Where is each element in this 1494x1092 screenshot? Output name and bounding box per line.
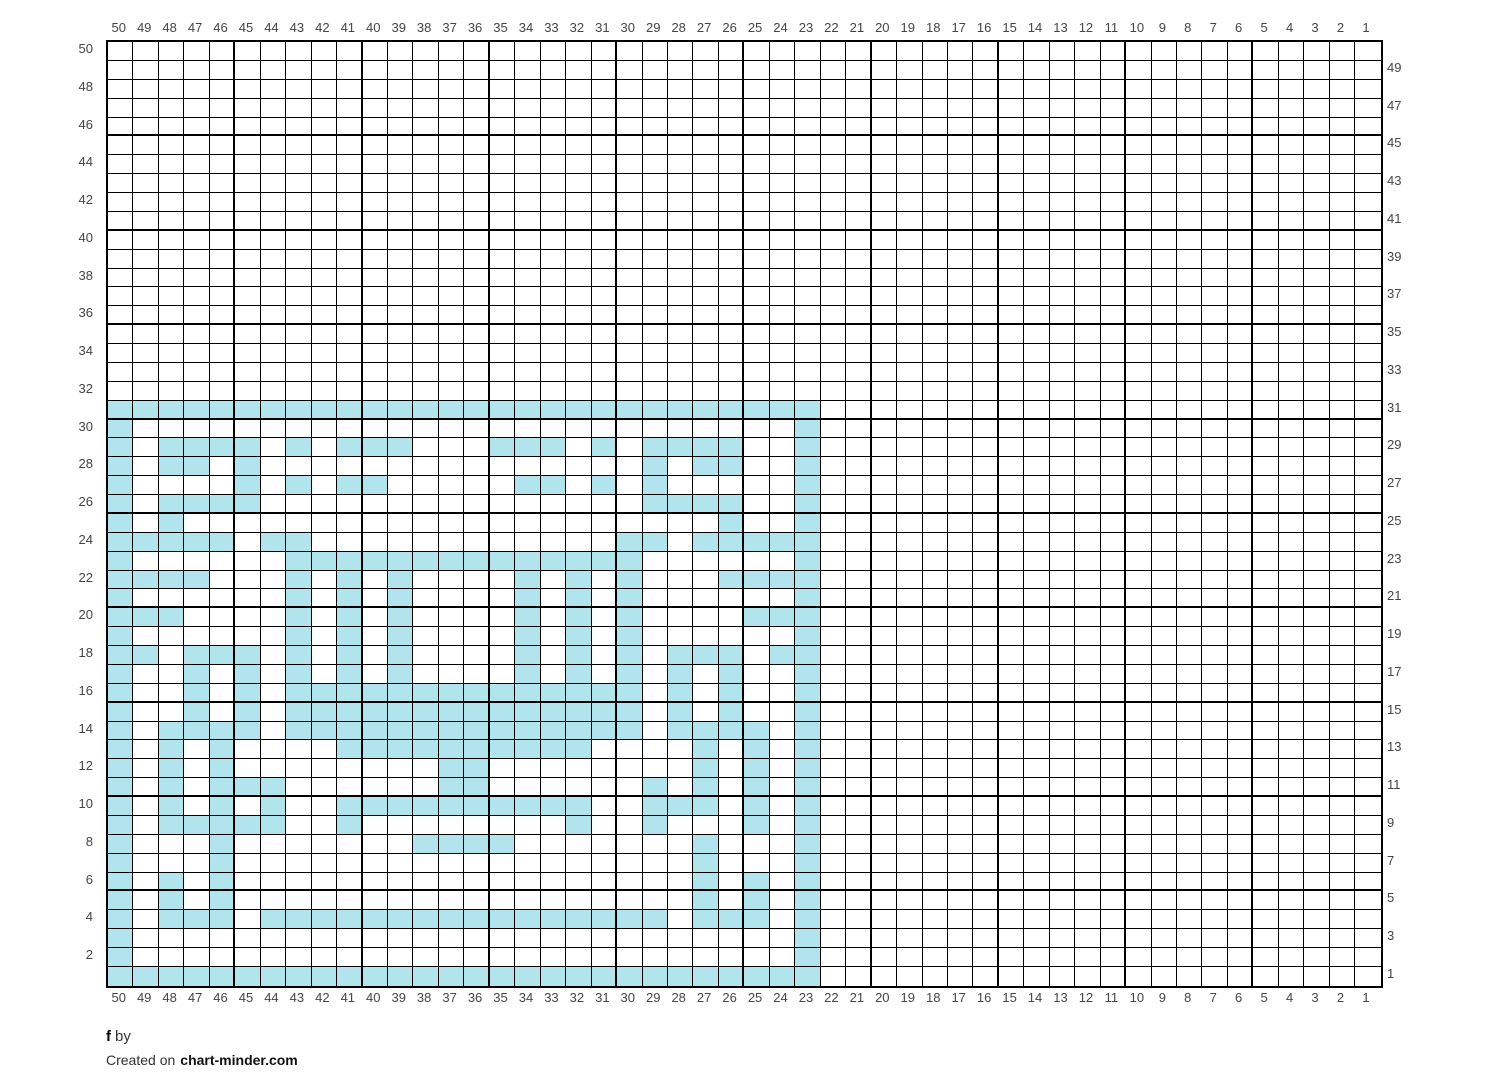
grid-cell[interactable] <box>1050 438 1075 457</box>
grid-cell[interactable] <box>108 80 133 99</box>
grid-cell[interactable] <box>490 552 515 571</box>
grid-cell[interactable] <box>388 759 413 778</box>
grid-cell[interactable] <box>1330 193 1355 212</box>
grid-cell[interactable] <box>1177 778 1202 797</box>
grid-cell[interactable] <box>184 514 209 533</box>
grid-cell[interactable] <box>108 929 133 948</box>
grid-cell[interactable] <box>337 646 362 665</box>
grid-cell[interactable] <box>1202 269 1227 288</box>
grid-cell[interactable] <box>235 684 260 703</box>
grid-cell[interactable] <box>1050 967 1075 986</box>
grid-cell[interactable] <box>1253 627 1278 646</box>
grid-cell[interactable] <box>999 835 1024 854</box>
grid-cell[interactable] <box>1050 363 1075 382</box>
grid-cell[interactable] <box>515 344 540 363</box>
grid-cell[interactable] <box>948 420 973 439</box>
grid-cell[interactable] <box>286 99 311 118</box>
grid-cell[interactable] <box>235 231 260 250</box>
grid-cell[interactable] <box>846 306 871 325</box>
grid-cell[interactable] <box>795 476 820 495</box>
grid-cell[interactable] <box>744 287 769 306</box>
grid-cell[interactable] <box>312 684 337 703</box>
grid-cell[interactable] <box>210 910 235 929</box>
grid-cell[interactable] <box>337 136 362 155</box>
grid-cell[interactable] <box>439 778 464 797</box>
grid-cell[interactable] <box>133 740 158 759</box>
grid-cell[interactable] <box>464 212 489 231</box>
grid-cell[interactable] <box>846 250 871 269</box>
grid-cell[interactable] <box>363 816 388 835</box>
grid-cell[interactable] <box>133 514 158 533</box>
grid-cell[interactable] <box>1330 287 1355 306</box>
grid-cell[interactable] <box>668 476 693 495</box>
grid-cell[interactable] <box>770 363 795 382</box>
grid-cell[interactable] <box>312 816 337 835</box>
grid-cell[interactable] <box>668 118 693 137</box>
grid-cell[interactable] <box>413 136 438 155</box>
grid-cell[interactable] <box>1355 287 1380 306</box>
grid-cell[interactable] <box>1101 740 1126 759</box>
grid-cell[interactable] <box>464 797 489 816</box>
grid-cell[interactable] <box>1024 929 1049 948</box>
grid-cell[interactable] <box>1152 287 1177 306</box>
grid-cell[interactable] <box>261 250 286 269</box>
grid-cell[interactable] <box>1177 816 1202 835</box>
grid-cell[interactable] <box>719 476 744 495</box>
grid-cell[interactable] <box>210 571 235 590</box>
grid-cell[interactable] <box>108 703 133 722</box>
grid-cell[interactable] <box>337 967 362 986</box>
grid-cell[interactable] <box>210 344 235 363</box>
grid-cell[interactable] <box>592 476 617 495</box>
grid-cell[interactable] <box>821 438 846 457</box>
grid-cell[interactable] <box>286 835 311 854</box>
grid-cell[interactable] <box>1202 231 1227 250</box>
grid-cell[interactable] <box>1177 495 1202 514</box>
grid-cell[interactable] <box>515 552 540 571</box>
grid-cell[interactable] <box>923 118 948 137</box>
grid-cell[interactable] <box>897 873 922 892</box>
grid-cell[interactable] <box>133 363 158 382</box>
grid-cell[interactable] <box>108 665 133 684</box>
grid-cell[interactable] <box>312 325 337 344</box>
grid-cell[interactable] <box>592 457 617 476</box>
grid-cell[interactable] <box>1330 363 1355 382</box>
grid-cell[interactable] <box>668 533 693 552</box>
grid-cell[interactable] <box>770 287 795 306</box>
grid-cell[interactable] <box>693 155 718 174</box>
grid-cell[interactable] <box>261 438 286 457</box>
grid-cell[interactable] <box>363 420 388 439</box>
grid-cell[interactable] <box>592 967 617 986</box>
grid-cell[interactable] <box>897 382 922 401</box>
grid-cell[interactable] <box>617 835 642 854</box>
grid-cell[interactable] <box>592 608 617 627</box>
grid-cell[interactable] <box>261 910 286 929</box>
grid-cell[interactable] <box>872 136 897 155</box>
grid-cell[interactable] <box>464 967 489 986</box>
grid-cell[interactable] <box>388 325 413 344</box>
grid-cell[interactable] <box>948 665 973 684</box>
grid-cell[interactable] <box>1075 250 1100 269</box>
grid-cell[interactable] <box>108 42 133 61</box>
grid-cell[interactable] <box>1228 589 1253 608</box>
grid-cell[interactable] <box>566 420 591 439</box>
grid-cell[interactable] <box>1304 854 1329 873</box>
grid-cell[interactable] <box>999 703 1024 722</box>
grid-cell[interactable] <box>337 155 362 174</box>
grid-cell[interactable] <box>1304 42 1329 61</box>
grid-cell[interactable] <box>923 835 948 854</box>
grid-cell[interactable] <box>1202 533 1227 552</box>
grid-cell[interactable] <box>413 589 438 608</box>
grid-cell[interactable] <box>592 231 617 250</box>
grid-cell[interactable] <box>948 476 973 495</box>
grid-cell[interactable] <box>1228 382 1253 401</box>
grid-cell[interactable] <box>770 212 795 231</box>
grid-cell[interactable] <box>1177 929 1202 948</box>
grid-cell[interactable] <box>719 136 744 155</box>
grid-cell[interactable] <box>1253 476 1278 495</box>
grid-cell[interactable] <box>159 873 184 892</box>
grid-cell[interactable] <box>1075 967 1100 986</box>
grid-cell[interactable] <box>413 910 438 929</box>
grid-cell[interactable] <box>439 533 464 552</box>
grid-cell[interactable] <box>1355 269 1380 288</box>
grid-cell[interactable] <box>490 778 515 797</box>
grid-cell[interactable] <box>363 684 388 703</box>
grid-cell[interactable] <box>973 740 998 759</box>
grid-cell[interactable] <box>210 665 235 684</box>
grid-cell[interactable] <box>388 571 413 590</box>
grid-cell[interactable] <box>464 533 489 552</box>
grid-cell[interactable] <box>184 533 209 552</box>
grid-cell[interactable] <box>872 948 897 967</box>
grid-cell[interactable] <box>184 740 209 759</box>
grid-cell[interactable] <box>133 816 158 835</box>
grid-cell[interactable] <box>1228 910 1253 929</box>
grid-cell[interactable] <box>133 495 158 514</box>
grid-cell[interactable] <box>1024 571 1049 590</box>
grid-cell[interactable] <box>108 627 133 646</box>
grid-cell[interactable] <box>108 722 133 741</box>
grid-cell[interactable] <box>948 854 973 873</box>
grid-cell[interactable] <box>1330 476 1355 495</box>
grid-cell[interactable] <box>1024 646 1049 665</box>
grid-cell[interactable] <box>159 533 184 552</box>
grid-cell[interactable] <box>490 948 515 967</box>
grid-cell[interactable] <box>1253 382 1278 401</box>
grid-cell[interactable] <box>1075 589 1100 608</box>
grid-cell[interactable] <box>948 174 973 193</box>
grid-cell[interactable] <box>617 155 642 174</box>
grid-cell[interactable] <box>363 759 388 778</box>
grid-cell[interactable] <box>439 854 464 873</box>
grid-cell[interactable] <box>1279 854 1304 873</box>
grid-cell[interactable] <box>159 589 184 608</box>
grid-cell[interactable] <box>897 99 922 118</box>
grid-cell[interactable] <box>872 457 897 476</box>
grid-cell[interactable] <box>541 854 566 873</box>
grid-cell[interactable] <box>541 665 566 684</box>
grid-cell[interactable] <box>1202 155 1227 174</box>
grid-cell[interactable] <box>566 759 591 778</box>
grid-cell[interactable] <box>1126 495 1151 514</box>
grid-cell[interactable] <box>872 627 897 646</box>
grid-cell[interactable] <box>337 929 362 948</box>
grid-cell[interactable] <box>693 627 718 646</box>
grid-cell[interactable] <box>872 646 897 665</box>
grid-cell[interactable] <box>1024 514 1049 533</box>
grid-cell[interactable] <box>617 816 642 835</box>
grid-cell[interactable] <box>1304 155 1329 174</box>
grid-cell[interactable] <box>770 325 795 344</box>
grid-cell[interactable] <box>643 250 668 269</box>
grid-cell[interactable] <box>363 967 388 986</box>
grid-cell[interactable] <box>999 684 1024 703</box>
grid-cell[interactable] <box>363 325 388 344</box>
grid-cell[interactable] <box>897 929 922 948</box>
grid-cell[interactable] <box>643 778 668 797</box>
grid-cell[interactable] <box>286 193 311 212</box>
grid-cell[interactable] <box>719 778 744 797</box>
grid-cell[interactable] <box>261 325 286 344</box>
grid-cell[interactable] <box>1228 99 1253 118</box>
grid-cell[interactable] <box>948 457 973 476</box>
grid-cell[interactable] <box>668 703 693 722</box>
grid-cell[interactable] <box>1075 476 1100 495</box>
grid-cell[interactable] <box>1075 363 1100 382</box>
grid-cell[interactable] <box>617 967 642 986</box>
grid-cell[interactable] <box>413 212 438 231</box>
grid-cell[interactable] <box>566 155 591 174</box>
grid-cell[interactable] <box>464 363 489 382</box>
grid-cell[interactable] <box>1253 42 1278 61</box>
grid-cell[interactable] <box>1202 910 1227 929</box>
grid-cell[interactable] <box>312 136 337 155</box>
grid-cell[interactable] <box>363 42 388 61</box>
grid-cell[interactable] <box>1050 420 1075 439</box>
grid-cell[interactable] <box>1279 910 1304 929</box>
grid-cell[interactable] <box>1050 42 1075 61</box>
grid-cell[interactable] <box>439 457 464 476</box>
grid-cell[interactable] <box>770 646 795 665</box>
grid-cell[interactable] <box>617 665 642 684</box>
grid-cell[interactable] <box>184 155 209 174</box>
grid-cell[interactable] <box>133 325 158 344</box>
grid-cell[interactable] <box>159 778 184 797</box>
grid-cell[interactable] <box>159 891 184 910</box>
grid-cell[interactable] <box>312 438 337 457</box>
grid-cell[interactable] <box>1228 495 1253 514</box>
grid-cell[interactable] <box>286 457 311 476</box>
grid-cell[interactable] <box>744 891 769 910</box>
grid-cell[interactable] <box>413 797 438 816</box>
grid-cell[interactable] <box>1202 967 1227 986</box>
grid-cell[interactable] <box>541 929 566 948</box>
grid-cell[interactable] <box>490 816 515 835</box>
grid-cell[interactable] <box>210 382 235 401</box>
grid-cell[interactable] <box>363 948 388 967</box>
grid-cell[interactable] <box>1075 873 1100 892</box>
grid-cell[interactable] <box>1152 759 1177 778</box>
grid-cell[interactable] <box>1202 136 1227 155</box>
grid-cell[interactable] <box>388 42 413 61</box>
grid-cell[interactable] <box>1075 287 1100 306</box>
grid-cell[interactable] <box>108 401 133 420</box>
grid-cell[interactable] <box>846 627 871 646</box>
grid-cell[interactable] <box>1228 250 1253 269</box>
grid-cell[interactable] <box>948 212 973 231</box>
grid-cell[interactable] <box>1330 80 1355 99</box>
grid-cell[interactable] <box>897 891 922 910</box>
grid-cell[interactable] <box>388 929 413 948</box>
grid-cell[interactable] <box>1101 759 1126 778</box>
grid-cell[interactable] <box>312 344 337 363</box>
grid-cell[interactable] <box>388 250 413 269</box>
grid-cell[interactable] <box>795 571 820 590</box>
grid-cell[interactable] <box>1101 891 1126 910</box>
grid-cell[interactable] <box>1177 608 1202 627</box>
grid-cell[interactable] <box>897 816 922 835</box>
grid-cell[interactable] <box>770 401 795 420</box>
grid-cell[interactable] <box>719 873 744 892</box>
grid-cell[interactable] <box>897 533 922 552</box>
grid-cell[interactable] <box>668 174 693 193</box>
grid-cell[interactable] <box>592 287 617 306</box>
grid-cell[interactable] <box>668 306 693 325</box>
grid-cell[interactable] <box>643 174 668 193</box>
grid-cell[interactable] <box>1075 118 1100 137</box>
grid-cell[interactable] <box>133 80 158 99</box>
grid-cell[interactable] <box>1075 835 1100 854</box>
grid-cell[interactable] <box>643 495 668 514</box>
grid-cell[interactable] <box>1355 420 1380 439</box>
grid-cell[interactable] <box>184 325 209 344</box>
grid-cell[interactable] <box>948 948 973 967</box>
grid-cell[interactable] <box>464 722 489 741</box>
grid-cell[interactable] <box>439 589 464 608</box>
grid-cell[interactable] <box>897 457 922 476</box>
grid-cell[interactable] <box>999 174 1024 193</box>
grid-cell[interactable] <box>108 608 133 627</box>
grid-cell[interactable] <box>821 533 846 552</box>
grid-cell[interactable] <box>795 778 820 797</box>
grid-cell[interactable] <box>1202 118 1227 137</box>
grid-cell[interactable] <box>999 118 1024 137</box>
grid-cell[interactable] <box>948 589 973 608</box>
grid-cell[interactable] <box>1228 401 1253 420</box>
grid-cell[interactable] <box>668 80 693 99</box>
grid-cell[interactable] <box>363 910 388 929</box>
grid-cell[interactable] <box>1253 306 1278 325</box>
grid-cell[interactable] <box>821 155 846 174</box>
grid-cell[interactable] <box>464 193 489 212</box>
grid-cell[interactable] <box>490 854 515 873</box>
grid-cell[interactable] <box>388 891 413 910</box>
grid-cell[interactable] <box>999 269 1024 288</box>
grid-cell[interactable] <box>592 552 617 571</box>
grid-cell[interactable] <box>261 495 286 514</box>
grid-cell[interactable] <box>1330 873 1355 892</box>
grid-cell[interactable] <box>286 722 311 741</box>
grid-cell[interactable] <box>439 646 464 665</box>
grid-cell[interactable] <box>1279 382 1304 401</box>
grid-cell[interactable] <box>1355 514 1380 533</box>
grid-cell[interactable] <box>1355 363 1380 382</box>
grid-cell[interactable] <box>872 495 897 514</box>
grid-cell[interactable] <box>312 212 337 231</box>
grid-cell[interactable] <box>464 325 489 344</box>
grid-cell[interactable] <box>541 344 566 363</box>
grid-cell[interactable] <box>821 740 846 759</box>
grid-cell[interactable] <box>973 778 998 797</box>
grid-cell[interactable] <box>108 363 133 382</box>
grid-cell[interactable] <box>363 457 388 476</box>
grid-cell[interactable] <box>1228 269 1253 288</box>
grid-cell[interactable] <box>1253 722 1278 741</box>
grid-cell[interactable] <box>1024 118 1049 137</box>
grid-cell[interactable] <box>210 136 235 155</box>
grid-cell[interactable] <box>1101 174 1126 193</box>
grid-cell[interactable] <box>1101 495 1126 514</box>
grid-cell[interactable] <box>1101 250 1126 269</box>
grid-cell[interactable] <box>1101 835 1126 854</box>
grid-cell[interactable] <box>1253 438 1278 457</box>
grid-cell[interactable] <box>286 212 311 231</box>
grid-cell[interactable] <box>643 231 668 250</box>
grid-cell[interactable] <box>363 703 388 722</box>
grid-cell[interactable] <box>286 136 311 155</box>
grid-cell[interactable] <box>719 835 744 854</box>
grid-cell[interactable] <box>923 420 948 439</box>
grid-cell[interactable] <box>133 193 158 212</box>
grid-cell[interactable] <box>363 495 388 514</box>
grid-cell[interactable] <box>1279 759 1304 778</box>
grid-cell[interactable] <box>1177 552 1202 571</box>
grid-cell[interactable] <box>439 835 464 854</box>
grid-cell[interactable] <box>261 476 286 495</box>
grid-cell[interactable] <box>515 287 540 306</box>
grid-cell[interactable] <box>515 627 540 646</box>
grid-cell[interactable] <box>1330 929 1355 948</box>
grid-cell[interactable] <box>821 495 846 514</box>
grid-cell[interactable] <box>846 495 871 514</box>
grid-cell[interactable] <box>439 722 464 741</box>
grid-cell[interactable] <box>897 722 922 741</box>
grid-cell[interactable] <box>235 816 260 835</box>
grid-cell[interactable] <box>1304 118 1329 137</box>
grid-cell[interactable] <box>1177 571 1202 590</box>
grid-cell[interactable] <box>464 495 489 514</box>
grid-cell[interactable] <box>1330 306 1355 325</box>
grid-cell[interactable] <box>261 703 286 722</box>
grid-cell[interactable] <box>1228 646 1253 665</box>
grid-cell[interactable] <box>846 514 871 533</box>
grid-cell[interactable] <box>643 627 668 646</box>
grid-cell[interactable] <box>999 929 1024 948</box>
grid-cell[interactable] <box>973 61 998 80</box>
grid-cell[interactable] <box>490 929 515 948</box>
grid-cell[interactable] <box>1075 891 1100 910</box>
grid-cell[interactable] <box>592 306 617 325</box>
grid-cell[interactable] <box>286 420 311 439</box>
grid-cell[interactable] <box>846 457 871 476</box>
grid-cell[interactable] <box>337 363 362 382</box>
grid-cell[interactable] <box>388 797 413 816</box>
grid-cell[interactable] <box>617 552 642 571</box>
grid-cell[interactable] <box>337 759 362 778</box>
